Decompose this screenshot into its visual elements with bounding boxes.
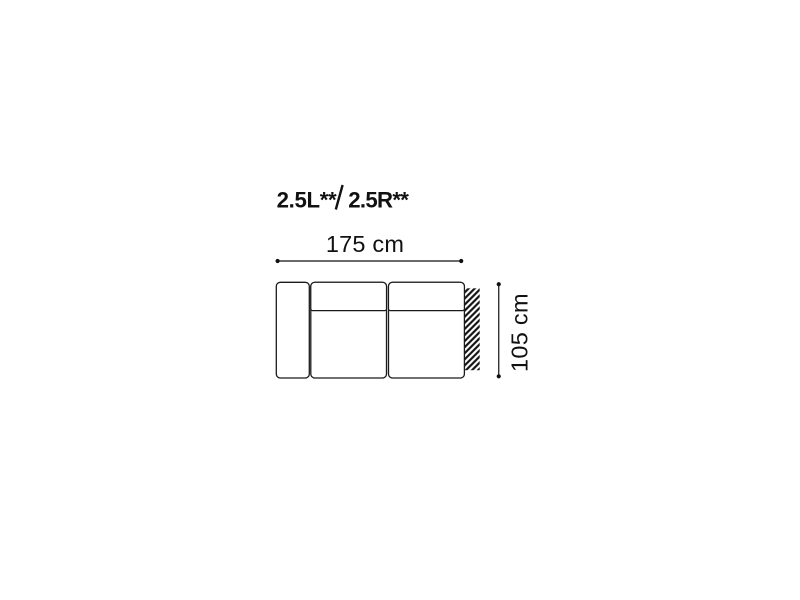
svg-text:175 cm: 175 cm (326, 231, 404, 257)
svg-text:2.5R**: 2.5R** (348, 187, 409, 212)
svg-text:105 cm: 105 cm (507, 293, 533, 372)
svg-text:2.5L**: 2.5L** (277, 187, 337, 212)
